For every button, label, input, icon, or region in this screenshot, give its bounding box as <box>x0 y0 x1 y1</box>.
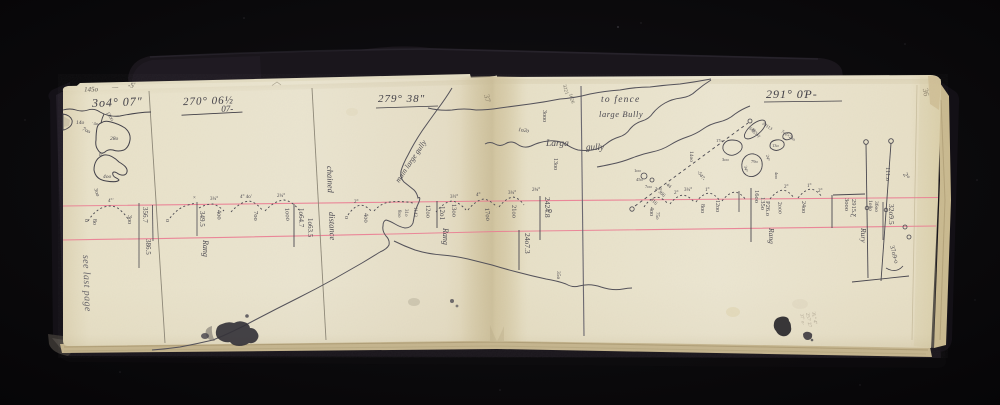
svg-text:2oo: 2oo <box>655 186 663 191</box>
svg-text:o: o <box>548 206 552 215</box>
svg-text:79o: 79o <box>751 159 759 164</box>
svg-text:7oo: 7oo <box>645 184 653 189</box>
svg-text:14oo: 14oo <box>688 151 694 162</box>
svg-text:3¼°: 3¼° <box>210 197 218 202</box>
svg-text:14o: 14o <box>76 119 85 126</box>
svg-text:37: 37 <box>482 93 492 102</box>
svg-text:Rury: Rury <box>859 227 868 243</box>
svg-text:31o: 31o <box>403 209 408 217</box>
svg-text:3¼°: 3¼° <box>684 188 692 193</box>
svg-text:32o9.5: 32o9.5 <box>887 204 896 225</box>
svg-text:24o7.3: 24o7.3 <box>523 233 532 254</box>
svg-text:28o: 28o <box>110 136 119 142</box>
svg-text:111.o: 111.o <box>884 167 891 181</box>
svg-text:4°ʾ: 4°ʾ <box>108 198 114 204</box>
svg-text:3½°: 3½° <box>450 195 458 200</box>
svg-text:36: 36 <box>921 88 931 97</box>
svg-text:13oo: 13oo <box>552 158 558 170</box>
svg-text:35o: 35o <box>555 271 561 280</box>
svg-text:279° 38″: 279° 38″ <box>378 93 425 105</box>
svg-text:349.5: 349.5 <box>198 211 206 227</box>
svg-text:16oo: 16oo <box>753 190 760 203</box>
svg-text:17oo: 17oo <box>483 207 491 221</box>
svg-text:3oo: 3oo <box>722 157 730 162</box>
svg-text:8o: 8o <box>91 219 97 225</box>
svg-text:4oo: 4oo <box>774 172 779 180</box>
svg-text:Rang: Rang <box>201 239 210 257</box>
svg-text:2915.Ƹ: 2915.Ƹ <box>850 199 857 218</box>
svg-text:see last page: see last page <box>80 255 93 312</box>
svg-text:4oo: 4oo <box>362 213 369 223</box>
svg-text:356.7: 356.7 <box>141 207 149 223</box>
svg-text:×: × <box>193 196 196 201</box>
svg-text:4oo: 4oo <box>648 207 654 216</box>
svg-text:1°: 1° <box>705 188 710 193</box>
svg-text:291° 0Ƥ-: 291° 0Ƥ- <box>766 87 818 101</box>
svg-text:2°: 2° <box>818 189 823 194</box>
svg-text:large Bully: large Bully <box>599 109 643 119</box>
svg-text:2ooo: 2ooo <box>776 202 783 214</box>
svg-text:—: — <box>111 83 119 91</box>
svg-text:3ooo: 3ooo <box>843 198 850 211</box>
svg-text:36oo: 36oo <box>873 201 879 212</box>
svg-text:45o: 45o <box>636 177 644 182</box>
svg-text:4oo: 4oo <box>103 173 112 180</box>
svg-text:4° 4o': 4° 4o' <box>240 195 252 200</box>
svg-text:75o: 75o <box>654 212 659 220</box>
svg-text:2¾°: 2¾° <box>532 188 540 193</box>
svg-text:-5': -5' <box>128 81 136 89</box>
svg-text:3oo: 3oo <box>126 215 132 224</box>
svg-text:3ooo: 3ooo <box>541 110 547 122</box>
svg-text:2¼°: 2¼° <box>277 194 285 199</box>
svg-text:2°: 2° <box>354 200 359 205</box>
svg-text:1oo: 1oo <box>634 168 642 173</box>
svg-text:3¼°: 3¼° <box>508 191 516 196</box>
svg-text:gully: gully <box>586 142 604 152</box>
svg-text:12oo: 12oo <box>714 200 720 212</box>
svg-text:13oo: 13oo <box>450 204 457 217</box>
svg-text:2°: 2° <box>784 185 789 190</box>
svg-text:17o: 17o <box>716 138 724 143</box>
svg-text:1o63.5: 1o63.5 <box>306 218 314 238</box>
svg-text:3o4° 07″: 3o4° 07″ <box>91 94 143 110</box>
svg-text:distance: distance <box>327 212 338 241</box>
svg-text:1°: 1° <box>807 184 812 189</box>
svg-text:386.5: 386.5 <box>144 239 152 255</box>
svg-text:4oo: 4oo <box>215 210 223 220</box>
svg-text:o: o <box>343 216 349 219</box>
svg-text:chained: chained <box>325 166 336 194</box>
svg-text:1143: 1143 <box>412 207 417 217</box>
svg-text:o: o <box>164 219 170 222</box>
svg-text:6ºʾ: 6ºʾ <box>99 152 105 158</box>
svg-text:P26.o: P26.o <box>764 201 771 216</box>
svg-text:8oo: 8oo <box>396 210 401 218</box>
svg-text:24oo: 24oo <box>800 201 806 213</box>
svg-text:Rang: Rang <box>441 227 450 245</box>
svg-text:13o: 13o <box>772 143 780 148</box>
svg-text:12oo: 12oo <box>424 205 431 218</box>
svg-text:21oo: 21oo <box>510 205 517 218</box>
svg-text:1ooo: 1ooo <box>283 207 291 221</box>
svg-text:4°: 4° <box>476 193 481 198</box>
svg-text:ʾ4o: ʾ4o <box>92 121 99 126</box>
svg-text:Larga: Larga <box>545 139 569 149</box>
svg-text:7oo: 7oo <box>252 211 259 221</box>
svg-text:Rang: Rang <box>767 227 776 244</box>
svg-text:2°: 2° <box>674 191 679 196</box>
svg-text:1o64.7: 1o64.7 <box>297 208 305 228</box>
svg-text:o: o <box>83 219 89 222</box>
svg-text:145o: 145o <box>84 85 99 93</box>
svg-text:8oo: 8oo <box>699 204 705 213</box>
svg-text:to fence: to fence <box>601 94 640 105</box>
